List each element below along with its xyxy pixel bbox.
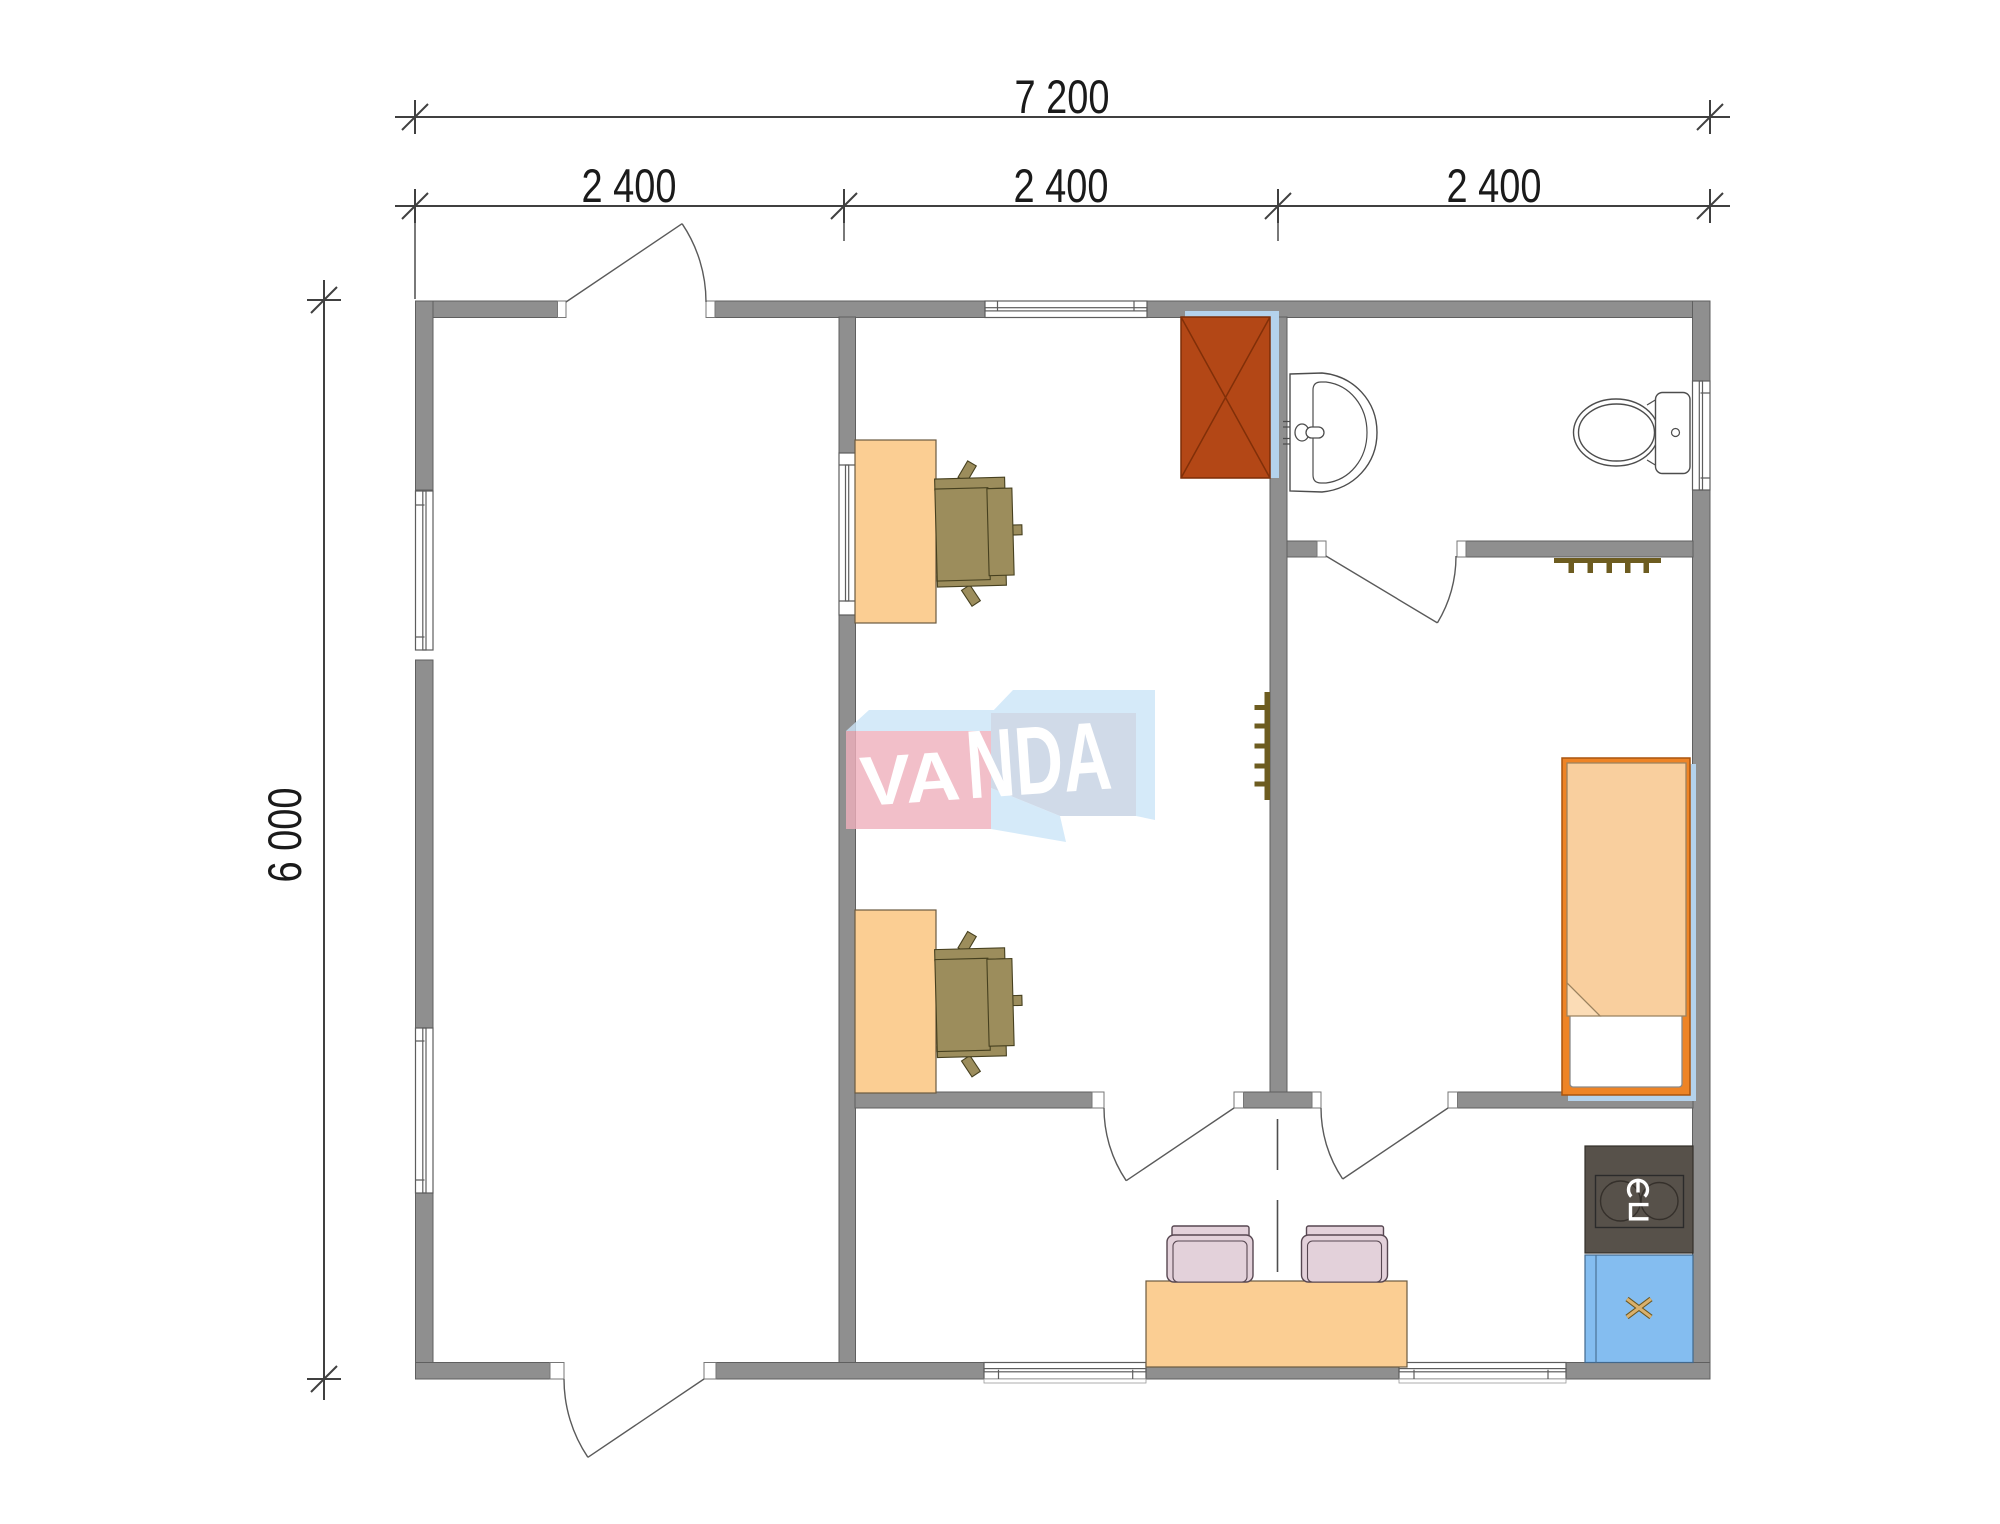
svg-text:2 400: 2 400 <box>582 159 677 212</box>
svg-text:2 400: 2 400 <box>1447 159 1542 212</box>
svg-text:NDA: NDA <box>962 701 1114 820</box>
svg-text:2 400: 2 400 <box>1014 159 1109 212</box>
svg-text:7 200: 7 200 <box>1015 70 1110 123</box>
svg-text:6 000: 6 000 <box>258 788 311 883</box>
svg-text:VA: VA <box>857 736 962 821</box>
